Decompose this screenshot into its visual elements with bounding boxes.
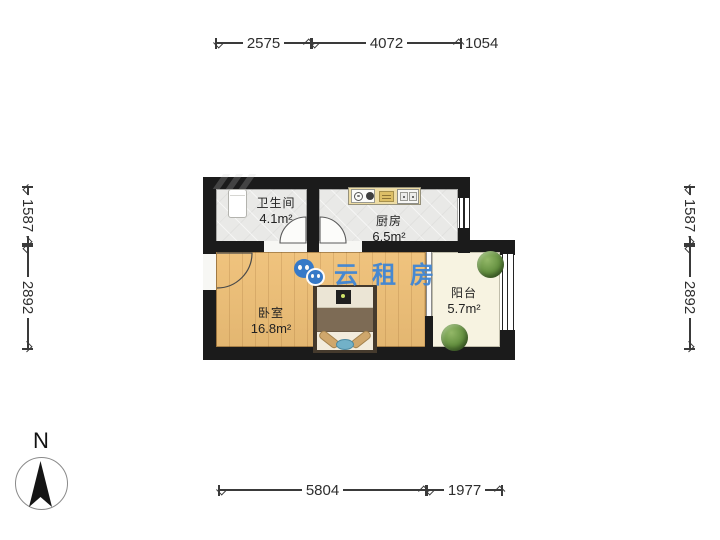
wall-watermark-mark — [218, 174, 251, 189]
dim-left-upper: 1587 — [20, 186, 36, 245]
room-area: 16.8m² — [251, 321, 291, 337]
wall-balcony-right-upper — [500, 240, 515, 255]
cutting-board-icon — [379, 191, 394, 202]
dim-arrow-right — [284, 42, 310, 43]
wall-bedroom-balcony-lower — [425, 316, 433, 347]
bed-icon — [313, 285, 377, 353]
dim-value: 2892 — [682, 277, 699, 318]
kitchen-door-arc — [319, 216, 348, 244]
water-heater-icon — [228, 189, 247, 218]
bed-blanket — [317, 308, 373, 332]
room-name: 厨房 — [372, 214, 405, 229]
dim-arrow-left — [220, 489, 302, 490]
dim-right-upper: 1587 — [682, 186, 698, 245]
watermark-text: 云租房 — [334, 255, 448, 290]
chat-bubble-small — [306, 268, 325, 286]
dim-value: 1587 — [682, 195, 699, 236]
stool-icon — [336, 339, 354, 350]
bed-foot — [317, 332, 373, 350]
floor-plan-canvas: 2575 4072 1054 5804 1977 1587 2892 — [0, 0, 720, 540]
entrance-door-arc — [216, 252, 254, 290]
entrance-door-threshold — [203, 254, 216, 290]
stove-icon — [351, 189, 375, 203]
dim-value: 1587 — [20, 195, 37, 236]
compass-north-arrow — [15, 457, 68, 510]
wall-kitchen-right-upper — [458, 177, 470, 198]
room-area: 6.5m² — [372, 229, 405, 245]
site-watermark: 云租房 — [294, 255, 448, 290]
room-name: 卧室 — [251, 306, 291, 321]
dim-arrow-right — [27, 318, 28, 348]
wechat-bubbles-icon — [294, 259, 324, 286]
room-name: 阳台 — [447, 286, 480, 301]
double-sink-icon — [397, 189, 419, 204]
room-name: 卫生间 — [256, 196, 295, 211]
dim-value: 2575 — [243, 35, 284, 52]
dim-value: 1977 — [444, 482, 485, 499]
dim-arrow-left — [689, 188, 690, 195]
dim-top-middle: 4072 — [311, 35, 462, 51]
room-area: 4.1m² — [256, 211, 295, 227]
dim-arrow-left — [428, 489, 444, 490]
dim-value: 2892 — [20, 277, 37, 318]
sink-basin-icon — [400, 192, 408, 201]
tv-icon — [336, 290, 351, 304]
dim-bottom-right: 1977 — [426, 482, 503, 498]
dim-arrow-right — [485, 489, 501, 490]
room-area: 5.7m² — [447, 301, 480, 317]
dim-arrow-right — [689, 318, 690, 348]
dim-value: 5804 — [302, 482, 343, 499]
wall-bath-kitchen-divider — [307, 177, 319, 252]
plant-icon — [477, 251, 504, 278]
kitchen-counter — [348, 187, 421, 205]
dim-arrow-left — [27, 188, 28, 195]
dim-arrow-left — [217, 42, 243, 43]
dim-arrow-right — [407, 42, 460, 43]
dim-top-right-value: 1054 — [465, 35, 498, 52]
wall-balcony-right-lower — [500, 330, 515, 360]
dim-right-lower: 2892 — [682, 245, 698, 350]
burner-icon — [366, 192, 374, 200]
compass-north-label: N — [33, 428, 49, 454]
dim-value: 4072 — [366, 35, 407, 52]
dim-bottom-left: 5804 — [218, 482, 427, 498]
wall-bedroom-top-left — [203, 241, 264, 252]
kitchen-window — [459, 198, 470, 228]
dim-arrow-left — [27, 247, 28, 277]
dim-arrow-left — [689, 247, 690, 277]
burner-icon — [354, 192, 363, 201]
bed-headboard — [317, 287, 373, 308]
plant-icon — [441, 324, 468, 351]
dim-top-left: 2575 — [215, 35, 312, 51]
dim-arrow-left — [313, 42, 366, 43]
kitchen-label: 厨房 6.5m² — [372, 214, 405, 245]
dim-arrow-right — [343, 489, 425, 490]
sink-basin-icon — [409, 192, 417, 201]
bedroom-label: 卧室 16.8m² — [251, 306, 291, 337]
bathroom-label: 卫生间 4.1m² — [256, 196, 295, 227]
balcony-label: 阳台 5.7m² — [447, 286, 480, 317]
dim-left-lower: 2892 — [20, 245, 36, 350]
